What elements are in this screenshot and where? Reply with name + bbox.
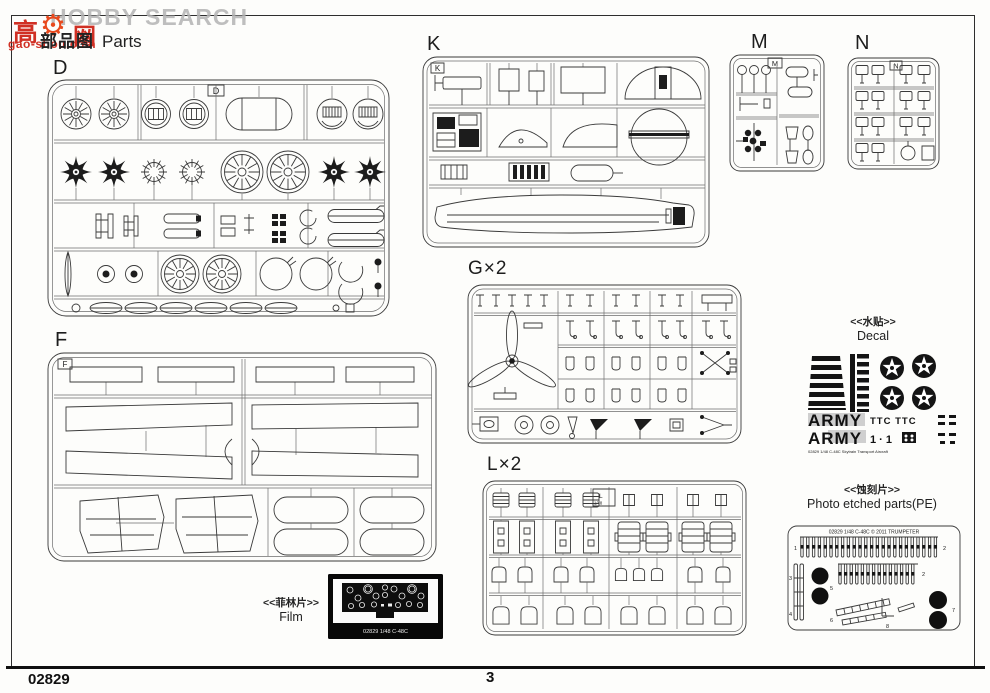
page-number: 3 [486,669,494,686]
pe-num-6: 6 [830,618,833,624]
sprue-n-drawing: N [846,56,942,172]
footer-product-code: 02829 [28,671,70,688]
parts-page: { "page": {"title_cn":"部品图","title_en":"… [0,0,990,693]
film-heading-en: Film [255,610,327,626]
sprue-label-n: N [855,32,870,55]
film-caption: 02829 1/48 C-48C [363,629,408,635]
pe-fret-title: 02829 1/48 C-48C © 2011 TRUMPETER [829,529,920,536]
page-bottom-rule [6,666,985,669]
pe-heading: <<蚀刻片>> Photo etched parts(PE) [772,484,972,513]
sprue-l-tag-scale: 1/48 [594,501,603,506]
pe-num-4: 4 [789,612,792,618]
decal-caption: 02829 1/48 C-48C Skytrain Transport Airc… [808,449,889,454]
sprue-label-k: K [427,33,441,56]
decal-ones: 1 · 1 [870,434,892,446]
decal-heading-cn: <<水贴>> [792,316,954,329]
pe-heading-cn: <<蚀刻片>> [772,484,972,497]
page-title-cn: 部品图 [40,32,94,51]
pe-num-3: 3 [789,576,792,582]
sprue-label-f: F [55,329,68,352]
sprue-g-drawing [466,283,744,447]
sprue-label-g: G×2 [468,258,507,280]
pe-fret: 02829 1/48 C-48C © 2011 TRUMPETER 1 2 3 … [786,516,964,634]
decal-heading: <<水贴>> Decal [792,316,954,345]
decal-army-2: ARMY [808,429,862,448]
decal-army-1: ARMY [808,411,862,430]
film-heading-cn: <<菲林片>> [255,597,327,610]
pe-num-1: 1 [794,546,797,552]
pe-num-7: 7 [952,608,955,614]
film-sheet: 02829 1/48 C-48C [328,574,443,639]
pe-heading-en: Photo etched parts(PE) [772,497,972,513]
sprue-label-m: M [751,31,769,54]
sprue-k-tag: K [435,64,441,73]
sprue-k-drawing: K [421,55,712,250]
sprue-m-drawing: M [728,53,827,174]
sprue-f-tag: F [63,360,68,369]
sprue-l-drawing: L 1/48 [481,479,749,639]
film-heading: <<菲林片>> Film [255,597,327,626]
page-title-en: Parts [102,32,142,51]
page-title: 部品图Parts [40,27,142,52]
decal-sheet: ARMY ARMY TTC TTC 1 · 1 02829 1/48 C-48C… [806,352,962,456]
sprue-f-drawing: F [46,351,439,564]
sprue-d-drawing: D [46,76,392,320]
sprue-label-l: L×2 [487,454,522,476]
pe-num-2b: 2 [922,572,925,578]
pe-num-2a: 2 [943,546,946,552]
sprue-l-tag: L [599,493,603,500]
decal-heading-en: Decal [792,329,954,345]
decal-ttc: TTC TTC [870,416,917,427]
pe-num-8: 8 [886,624,889,630]
pe-num-5: 5 [830,586,833,592]
